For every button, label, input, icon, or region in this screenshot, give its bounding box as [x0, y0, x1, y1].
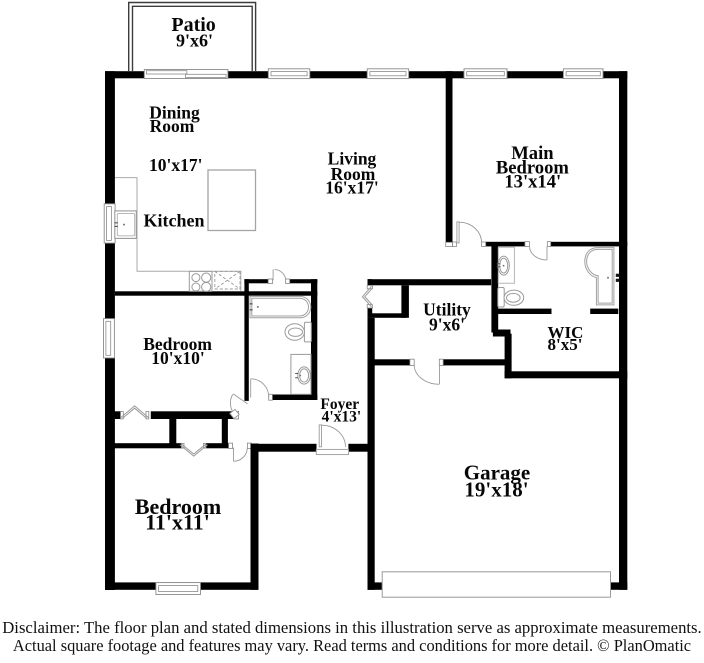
svg-text:16'x17': 16'x17' — [325, 178, 378, 198]
svg-text:10'x17': 10'x17' — [149, 155, 202, 175]
svg-text:Kitchen: Kitchen — [144, 211, 205, 231]
svg-text:4'x13': 4'x13' — [322, 408, 362, 425]
svg-text:19'x18': 19'x18' — [464, 477, 528, 501]
svg-text:9'x6': 9'x6' — [429, 315, 465, 335]
svg-text:8'x5': 8'x5' — [548, 335, 583, 354]
svg-text:11'x11': 11'x11' — [145, 510, 210, 535]
svg-text:Actual square footage and feat: Actual square footage and features may v… — [13, 636, 691, 655]
svg-text:Disclaimer: The floor plan and: Disclaimer: The floor plan and stated di… — [2, 618, 701, 637]
svg-text:13'x14': 13'x14' — [504, 172, 561, 193]
svg-text:Room: Room — [150, 116, 195, 136]
svg-text:9'x6': 9'x6' — [176, 31, 213, 51]
svg-text:10'x10': 10'x10' — [151, 348, 204, 368]
